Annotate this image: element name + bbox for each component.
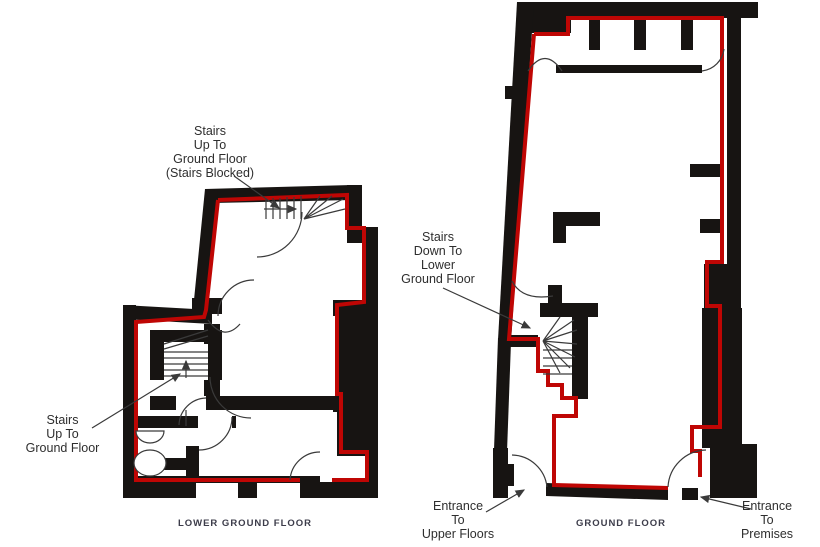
lgf-wc-fixtures (134, 431, 166, 476)
annotation-entrance-upper-floors: Entrance To Upper Floors (395, 499, 521, 541)
floorplan-canvas: Stairs Up To Ground Floor (Stairs Blocke… (0, 0, 820, 547)
annotation-stairs-down: Stairs Down To Lower Ground Floor (363, 230, 513, 286)
annotation-stairs-up: Stairs Up To Ground Floor (0, 413, 125, 455)
annotation-entrance-premises: Entrance To Premises (714, 499, 820, 541)
lower-ground-floor-plan (123, 185, 378, 498)
leader-stairs-down (443, 288, 530, 328)
toilet-symbol (134, 450, 166, 476)
label-lower-ground-floor: LOWER GROUND FLOOR (145, 518, 345, 529)
basin-symbol (136, 431, 164, 443)
gf-demise-outline (509, 18, 722, 488)
gf-winder-staircase (543, 317, 577, 374)
annotation-stairs-up-blocked: Stairs Up To Ground Floor (Stairs Blocke… (135, 124, 285, 180)
label-ground-floor: GROUND FLOOR (521, 518, 721, 529)
gf-door-arcs (512, 49, 724, 487)
ground-floor-plan (493, 2, 758, 500)
